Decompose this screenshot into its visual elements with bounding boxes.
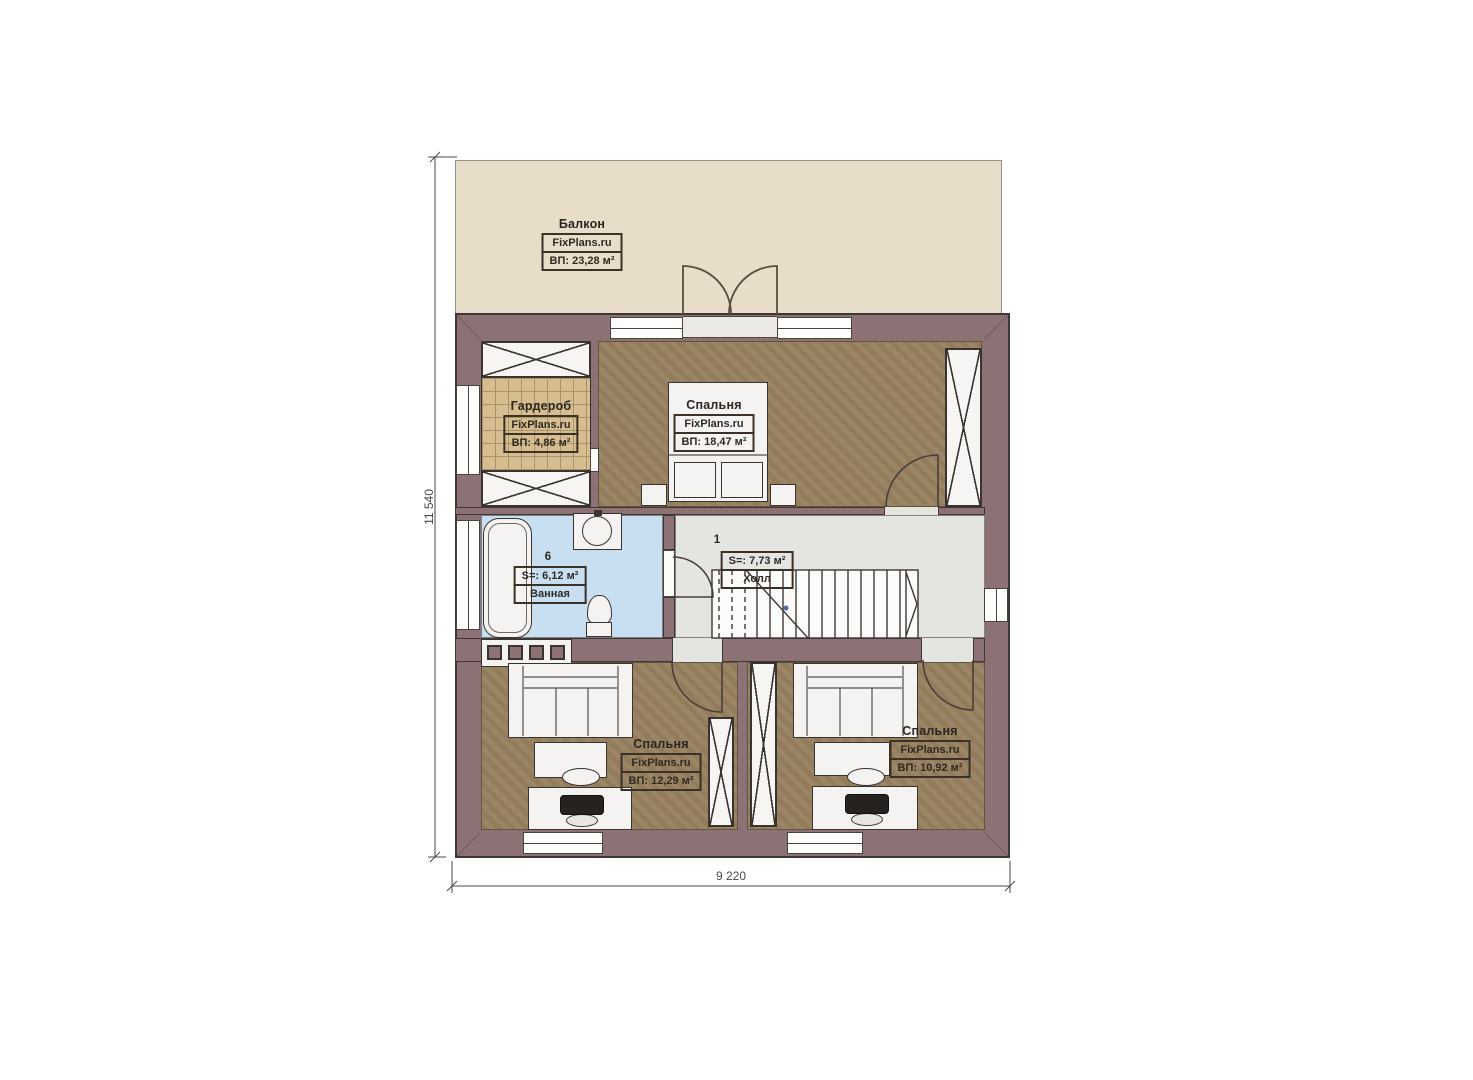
bathroom-door-arc [673, 557, 713, 597]
floor-plan: Балкон FixPlans.ru ВП: 23,28 м² Гардероб… [0, 0, 1473, 1080]
bathroom-label-group: S=: 6,12 м² Ванная [514, 566, 587, 604]
hall-area: S=: 7,73 м² [721, 551, 794, 571]
wardrobe-name: Гардероб [503, 399, 578, 413]
bedroom-right-door-arc [923, 660, 973, 710]
dimension-width: 9 220 [716, 869, 746, 883]
bedroom-top-name: Спальня [674, 398, 755, 412]
bed-left-details [523, 666, 618, 736]
balcony-door-right-arc [729, 266, 777, 314]
bathroom-number: 6 [545, 551, 551, 563]
balcony-door-left-arc [683, 266, 731, 314]
wardrobe-area: ВП: 4,86 м² [503, 433, 578, 453]
plan-linework [0, 0, 1473, 1080]
bathroom-area: S=: 6,12 м² [514, 566, 587, 586]
dimension-height: 11 540 [422, 477, 436, 537]
balcony-brand: FixPlans.ru [542, 233, 623, 253]
bedroom-right-name: Спальня [890, 724, 971, 738]
bedroom-left-door-arc [672, 662, 722, 712]
wardrobe-brand: FixPlans.ru [503, 415, 578, 435]
wardrobe-label-group: Гардероб FixPlans.ru ВП: 4,86 м² [503, 399, 578, 453]
bedroom-top-door-arc [886, 455, 938, 507]
balcony-name: Балкон [542, 217, 623, 231]
stair-node [784, 606, 789, 611]
hall-label-group: S=: 7,73 м² Холл [721, 551, 794, 589]
bedroom-left-area: ВП: 12,29 м² [621, 771, 702, 791]
bedroom-left-brand: FixPlans.ru [621, 753, 702, 773]
hall-name: Холл [721, 569, 794, 589]
bedroom-right-brand: FixPlans.ru [890, 740, 971, 760]
balcony-area: ВП: 23,28 м² [542, 251, 623, 271]
bathroom-name: Ванная [514, 584, 587, 604]
bedroom-right-area: ВП: 10,92 м² [890, 758, 971, 778]
bedroom-left-label-group: Спальня FixPlans.ru ВП: 12,29 м² [621, 737, 702, 791]
bedroom-left-name: Спальня [621, 737, 702, 751]
hall-number: 1 [714, 534, 720, 546]
dimension-lines [428, 152, 1015, 893]
bedroom-right-label-group: Спальня FixPlans.ru ВП: 10,92 м² [890, 724, 971, 778]
bedroom-top-area: ВП: 18,47 м² [674, 432, 755, 452]
bedroom-top-label-group: Спальня FixPlans.ru ВП: 18,47 м² [674, 398, 755, 452]
balcony-label-group: Балкон FixPlans.ru ВП: 23,28 м² [542, 217, 623, 271]
bedroom-top-brand: FixPlans.ru [674, 414, 755, 434]
